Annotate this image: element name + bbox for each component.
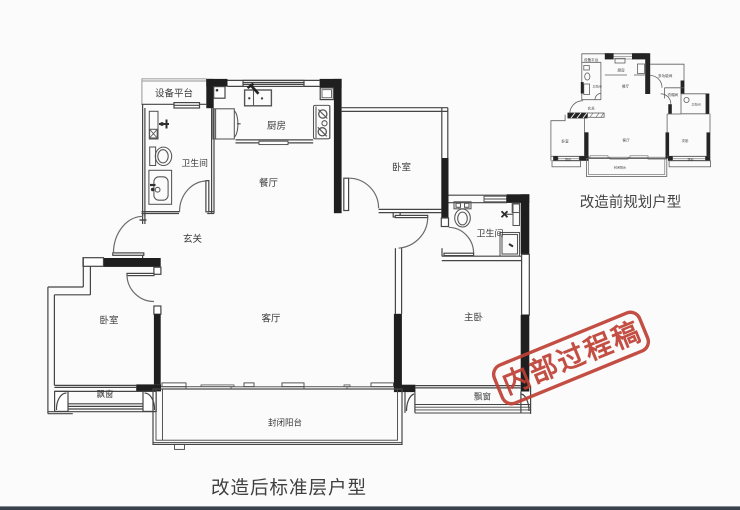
svg-text:封闭阳台: 封闭阳台 — [268, 418, 302, 428]
svg-text:厨房: 厨房 — [618, 68, 626, 73]
svg-text:玄关: 玄关 — [183, 233, 203, 245]
svg-text:飘窗: 飘窗 — [97, 389, 114, 399]
svg-text:封闭阳台: 封闭阳台 — [614, 165, 626, 170]
svg-text:厨房: 厨房 — [267, 120, 286, 132]
svg-text:飘窗: 飘窗 — [688, 157, 694, 162]
svg-text:卫生间: 卫生间 — [593, 84, 602, 89]
svg-text:多功能间: 多功能间 — [658, 73, 673, 78]
svg-text:衣帽间: 衣帽间 — [668, 92, 679, 97]
svg-text:客厅: 客厅 — [262, 313, 282, 325]
svg-text:飘窗: 飘窗 — [565, 157, 571, 162]
svg-text:卧室: 卧室 — [100, 315, 119, 327]
svg-text:飘窗: 飘窗 — [474, 392, 491, 402]
svg-text:卫生间: 卫生间 — [692, 102, 701, 107]
svg-text:卫生间: 卫生间 — [182, 157, 209, 168]
svg-text:餐厅: 餐厅 — [259, 177, 279, 189]
svg-text:主卧: 主卧 — [464, 312, 484, 324]
svg-text:次卧: 次卧 — [682, 138, 690, 143]
svg-text:卫生间: 卫生间 — [477, 228, 504, 239]
svg-text:卧室: 卧室 — [392, 162, 411, 174]
svg-text:改造后标准层户型: 改造后标准层户型 — [211, 477, 367, 498]
svg-text:玄关: 玄关 — [588, 106, 596, 111]
svg-text:卧室: 卧室 — [562, 139, 570, 144]
svg-text:改造前规划户型: 改造前规划户型 — [580, 194, 682, 211]
svg-text:设备平台: 设备平台 — [584, 57, 599, 62]
svg-text:设备平台: 设备平台 — [155, 88, 193, 100]
svg-text:客厅: 客厅 — [623, 138, 631, 143]
svg-text:餐厅: 餐厅 — [622, 84, 630, 89]
